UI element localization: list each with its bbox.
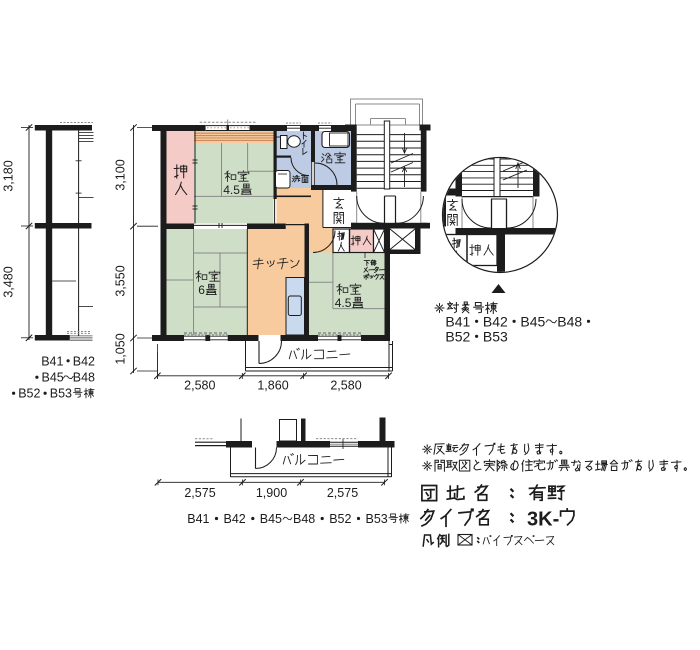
svg-text:B45: B45: [260, 512, 282, 526]
svg-text:2,575: 2,575: [327, 486, 358, 500]
svg-text:3K-: 3K-: [527, 509, 559, 531]
svg-text:B53: B53: [50, 387, 72, 401]
svg-text:B42: B42: [224, 512, 246, 526]
svg-text:4.5: 4.5: [335, 296, 352, 310]
svg-text:B53: B53: [483, 328, 508, 344]
svg-text:B41: B41: [445, 313, 470, 329]
svg-text:2,580: 2,580: [184, 379, 215, 393]
svg-text:B41: B41: [187, 512, 209, 526]
svg-text:B52: B52: [18, 387, 40, 401]
svg-text:B42: B42: [483, 313, 508, 329]
svg-text:4.5: 4.5: [223, 183, 240, 197]
svg-text:B48: B48: [293, 512, 315, 526]
svg-text:2,575: 2,575: [184, 486, 215, 500]
svg-text:3,550: 3,550: [114, 265, 128, 296]
svg-text:B48: B48: [73, 371, 95, 385]
svg-text:1,860: 1,860: [257, 379, 288, 393]
svg-text:B42: B42: [73, 354, 95, 368]
svg-text:B45: B45: [42, 371, 64, 385]
svg-text:B52: B52: [445, 328, 470, 344]
svg-text:B53: B53: [366, 512, 388, 526]
svg-text:B48: B48: [557, 313, 582, 329]
svg-text:B41: B41: [41, 354, 63, 368]
svg-text:3,180: 3,180: [2, 160, 16, 191]
svg-text:1,050: 1,050: [114, 333, 128, 364]
svg-text:6: 6: [198, 283, 205, 297]
svg-text:B45: B45: [520, 313, 545, 329]
svg-text:1,900: 1,900: [256, 486, 287, 500]
svg-text:B52: B52: [329, 512, 351, 526]
svg-text:3,100: 3,100: [114, 159, 128, 190]
svg-text:2,580: 2,580: [330, 379, 361, 393]
svg-text:3,480: 3,480: [2, 266, 16, 297]
